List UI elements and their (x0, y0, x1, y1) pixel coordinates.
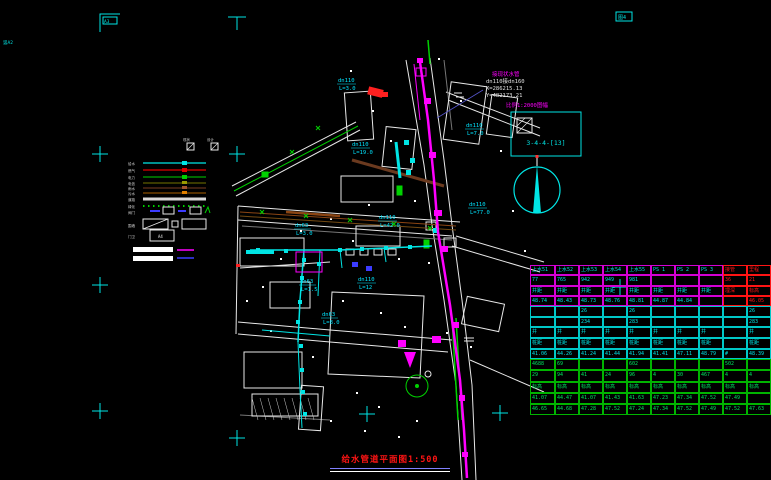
table-cell (603, 317, 627, 328)
table-cell (699, 306, 723, 317)
north-arrow (514, 155, 560, 213)
legend-symbol-row-label: 阀门 (128, 210, 135, 215)
table-cell: 46.05 (747, 296, 771, 306)
svg-text:给水: 给水 (128, 161, 135, 166)
table-cell: 41.63 (627, 393, 651, 404)
svg-text:dn110: dn110 (338, 78, 355, 84)
title-underline (330, 468, 450, 469)
table-cell (723, 338, 747, 349)
table-cell: 29 (530, 370, 555, 381)
table-cell: 上水51 (530, 265, 555, 275)
table-row: 234283283 (530, 317, 771, 328)
svg-text:雨水: 雨水 (128, 186, 135, 191)
table-cell (651, 306, 675, 317)
table-cell: 井距 (555, 286, 579, 296)
pipe-label: dn110L=3.0 (337, 78, 356, 92)
svg-text:L=42.0: L=42.0 (380, 223, 400, 229)
table-cell: 接管 (723, 265, 747, 275)
table-cell: 47.34 (675, 393, 699, 404)
table-cell: 标高 (675, 382, 699, 393)
table-cell: 44.87 (651, 296, 675, 306)
table-cell: 井 (699, 327, 723, 338)
table-cell (603, 359, 627, 370)
svg-text:L=3.0: L=3.0 (296, 231, 313, 237)
table-cell: 桩距 (603, 338, 627, 349)
svg-text:X=286215.13: X=286215.13 (486, 86, 522, 92)
table-cell: 井 (651, 327, 675, 338)
table-cell: 48.73 (579, 296, 603, 306)
legend-header-left: 现状 (183, 137, 190, 142)
table-cell (651, 317, 675, 328)
table-cell: 标高 (555, 382, 579, 393)
table-cell: 981 (627, 275, 651, 285)
table-cell (530, 306, 555, 317)
table-cell: 41.44 (603, 349, 627, 360)
svg-text:dn110: dn110 (379, 215, 396, 221)
table-cell: 井 (530, 327, 555, 338)
table-cell: 桩距 (699, 338, 723, 349)
table-row: 468869602502 (530, 359, 771, 370)
table-cell: 41.24 (579, 349, 603, 360)
table-cell: 桩距 (555, 338, 579, 349)
table-cell: 48.81 (627, 296, 651, 306)
table-cell: 标高 (579, 382, 603, 393)
pipe-label: dn110L=77.0 (468, 202, 490, 216)
table-cell: 井距 (699, 286, 723, 296)
title-underline (330, 471, 450, 472)
legend: 现状 设计 给水 燃气 电力 电信 雨水 污水 道路 绿化 阀门 围墙 (128, 137, 218, 261)
table-cell: 41 (579, 370, 603, 381)
pipeline-fittings-magenta (398, 58, 468, 457)
table-cell: 44.68 (555, 404, 579, 415)
water-pipes-cyan (246, 142, 432, 428)
table-cell: 桩距 (747, 338, 771, 349)
svg-text:dn110接dn160: dn110接dn160 (486, 77, 525, 85)
table-cell: 标高 (627, 382, 651, 393)
key-map-scale-note: 比例1:2000图幅 (506, 101, 548, 109)
sheet-stamp-top-right: 图4 (618, 15, 626, 21)
table-cell (723, 296, 747, 306)
table-cell (555, 306, 579, 317)
table-cell: 井 (555, 327, 579, 338)
table-cell (723, 306, 747, 317)
svg-text:L=8.0: L=8.0 (323, 320, 340, 326)
svg-text:dn63: dn63 (295, 223, 308, 229)
table-cell: 48.76 (603, 296, 627, 306)
table-row: 46.6544.6847.2847.5247.2447.3447.5247.49… (530, 404, 771, 415)
table-cell: 井 (603, 327, 627, 338)
table-cell: 4688 (530, 359, 555, 370)
table-cell: 4 (651, 370, 675, 381)
table-cell: 桩距 (675, 338, 699, 349)
table-row: 777659429499813621 (530, 275, 771, 285)
table-cell: 井 (747, 327, 771, 338)
table-cell (675, 306, 699, 317)
drawing-title-block: 给水管道平面图1:500 (330, 447, 450, 472)
svg-text:L=19.0: L=19.0 (353, 150, 373, 156)
table-cell: 47.52 (603, 404, 627, 415)
table-cell: 949 (603, 275, 627, 285)
parking-hatch (252, 398, 314, 420)
table-cell: 井距 (530, 286, 555, 296)
table-cell: 26 (627, 306, 651, 317)
table-cell: 283 (627, 317, 651, 328)
table-cell (699, 275, 723, 285)
table-cell: 47.49 (699, 404, 723, 415)
table-cell: 36 (723, 275, 747, 285)
table-cell: 41.07 (579, 393, 603, 404)
table-cell: 234 (579, 317, 603, 328)
table-cell: 47.49 (723, 393, 747, 404)
table-cell: 942 (579, 275, 603, 285)
table-cell (651, 275, 675, 285)
table-cell (579, 359, 603, 370)
table-cell: 桩距 (651, 338, 675, 349)
table-cell: 47.28 (579, 404, 603, 415)
table-cell (675, 317, 699, 328)
table-cell: PS 1 (651, 265, 675, 275)
sheet-stamp-left-edge: 竖A2 (3, 39, 13, 46)
table-cell: 井距 (603, 286, 627, 296)
table-cell: 41.94 (627, 349, 651, 360)
table-cell: 47.52 (675, 404, 699, 415)
table-cell: 47.63 (747, 404, 771, 415)
table-cell: 上水53 (579, 265, 603, 275)
table-cell (675, 275, 699, 285)
table-cell: 标高 (747, 382, 771, 393)
table-row: 41.0644.2641.2441.4441.9441.4147.1148.79… (530, 349, 771, 360)
sheet-stamp-top-left: A3 (104, 19, 110, 25)
table-cell: 上水52 (555, 265, 579, 275)
table-row: 井距井距井距井距井距井距井距井距埋深标高 (530, 286, 771, 296)
table-cell: 47.11 (675, 349, 699, 360)
svg-text:dn110: dn110 (358, 277, 375, 283)
red-markers (236, 86, 388, 267)
table-cell: 69 (555, 359, 579, 370)
table-cell: 26 (747, 306, 771, 317)
svg-text:dn63: dn63 (300, 279, 313, 285)
legend-box-label: A4 (158, 234, 163, 239)
table-cell: 47.52 (699, 393, 723, 404)
svg-text:L=77.0: L=77.0 (470, 210, 490, 216)
table-cell: 标高 (747, 286, 771, 296)
svg-text:电力: 电力 (128, 175, 135, 180)
table-cell: 井距 (627, 286, 651, 296)
table-cell: 标高 (603, 382, 627, 393)
svg-text:dn110: dn110 (466, 123, 483, 129)
table-cell: 46.65 (530, 404, 555, 415)
coordinate-note: 接现状水管 dn110接dn160 X=286215.13 Y=482173.2… (486, 70, 525, 99)
table-cell: # (723, 349, 747, 360)
svg-text:L=12: L=12 (359, 285, 372, 291)
manhole-circle (425, 371, 431, 377)
table-cell: 502 (723, 359, 747, 370)
table-row: 桩距桩距桩距桩距桩距桩距桩距桩距桩距 (530, 338, 771, 349)
table-cell: 井 (675, 327, 699, 338)
table-cell: 41.07 (530, 393, 555, 404)
svg-text:道路: 道路 (128, 197, 135, 202)
table-cell: 4 (747, 370, 771, 381)
svg-text:L=7.0: L=7.0 (467, 131, 484, 137)
table-cell: 41.43 (603, 393, 627, 404)
table-cell (651, 359, 675, 370)
table-cell: 48.43 (555, 296, 579, 306)
table-row: 48.7448.4348.7348.7648.8144.8744.8446.05 (530, 296, 771, 306)
cad-plot-sheet[interactable]: 图4 A3 竖A2 (0, 0, 771, 480)
table-cell (723, 317, 747, 328)
table-cell (530, 317, 555, 328)
key-map-sheet-ref: 3-4-4-[13] (526, 139, 565, 147)
table-row: 41.0744.4741.0741.4341.6347.2347.3447.52… (530, 393, 771, 404)
key-map-inset: 比例1:2000图幅 3-4-4-[13] (506, 101, 581, 156)
table-cell: 井距 (579, 286, 603, 296)
table-cell: 602 (627, 359, 651, 370)
table-cell: 上水54 (603, 265, 627, 275)
table-cell: 标高 (530, 382, 555, 393)
table-cell: 26 (579, 306, 603, 317)
table-cell (675, 359, 699, 370)
table-cell: 283 (747, 317, 771, 328)
table-cell: 44.84 (675, 296, 699, 306)
table-cell: PS 3 (699, 265, 723, 275)
table-cell: 24 (603, 370, 627, 381)
table-cell (699, 296, 723, 306)
table-cell: 47.23 (651, 393, 675, 404)
pipe-label: dn110L=19.0 (351, 142, 373, 156)
table-cell: 47.52 (723, 404, 747, 415)
table-row: 标高标高标高标高标高标高标高标高标高标高 (530, 382, 771, 393)
svg-text:dn110: dn110 (469, 202, 486, 208)
table-cell: 标高 (723, 382, 747, 393)
table-cell: 47.24 (627, 404, 651, 415)
table-cell: 井距 (651, 286, 675, 296)
table-cell: 埋深 (723, 286, 747, 296)
table-cell (723, 327, 747, 338)
table-row: 299441249643046744 (530, 370, 771, 381)
table-cell: PS 2 (675, 265, 699, 275)
legend-frame-row-label: 围墙 (128, 223, 135, 228)
table-cell: 4 (723, 370, 747, 381)
table-cell: 77 (530, 275, 555, 285)
table-cell: 48.74 (530, 296, 555, 306)
table-cell: 48.39 (747, 349, 771, 360)
table-cell (555, 317, 579, 328)
table-cell: 标高 (651, 382, 675, 393)
table-cell: 上水55 (627, 265, 651, 275)
legend-box-row-label: 门卫 (128, 234, 135, 239)
svg-text:L=1.5: L=1.5 (301, 287, 318, 293)
table-cell: 44.26 (555, 349, 579, 360)
table-cell: 41.06 (530, 349, 555, 360)
drawing-title: 给水管道平面图1:500 (341, 455, 438, 465)
table-cell: 井距 (675, 286, 699, 296)
svg-text:燃气: 燃气 (128, 168, 135, 173)
table-cell: 96 (627, 370, 651, 381)
table-cell (747, 359, 771, 370)
svg-text:绿化: 绿化 (128, 204, 135, 209)
table-cell (747, 393, 771, 404)
table-cell: 桩距 (530, 338, 555, 349)
profile-data-table: 上水51上水52上水53上水54上水55PS 1PS 2PS 3接管里程7776… (530, 265, 771, 416)
table-cell: 标高 (699, 382, 723, 393)
svg-text:dn63: dn63 (322, 312, 335, 318)
table-cell: 467 (699, 370, 723, 381)
table-cell: 桩距 (627, 338, 651, 349)
table-row: 上水51上水52上水53上水54上水55PS 1PS 2PS 3接管里程 (530, 265, 771, 275)
table-cell: 桩距 (579, 338, 603, 349)
svg-text:L=3.0: L=3.0 (339, 86, 356, 92)
table-cell: 47.34 (651, 404, 675, 415)
table-cell: 48.79 (699, 349, 723, 360)
table-cell: 30 (675, 370, 699, 381)
svg-text:Y=482173.21: Y=482173.21 (486, 93, 522, 99)
table-cell: 21 (747, 275, 771, 285)
table-cell (699, 359, 723, 370)
svg-text:污水: 污水 (128, 191, 135, 196)
svg-text:dn110: dn110 (352, 142, 369, 148)
pipe-label: dn110L=12 (357, 277, 376, 291)
table-cell: 765 (555, 275, 579, 285)
table-cell (699, 317, 723, 328)
svg-text:接现状水管: 接现状水管 (492, 70, 520, 78)
table-cell (603, 306, 627, 317)
table-cell: 井 (579, 327, 603, 338)
table-row: 井井井井井井井井井 (530, 327, 771, 338)
table-row: 262626 (530, 306, 771, 317)
svg-text:电信: 电信 (128, 181, 135, 186)
legend-header-right: 设计 (207, 137, 214, 142)
table-cell: 44.47 (555, 393, 579, 404)
table-cell: 里程 (747, 265, 771, 275)
table-cell: 井 (627, 327, 651, 338)
table-cell: 94 (555, 370, 579, 381)
table-cell: 41.41 (651, 349, 675, 360)
